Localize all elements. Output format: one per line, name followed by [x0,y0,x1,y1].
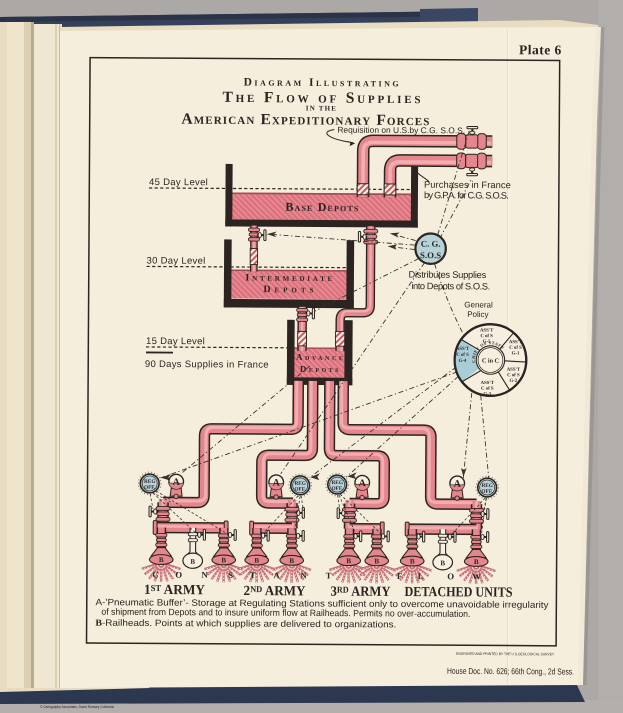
svg-text:Policy: Policy [467,310,488,319]
svg-text:L: L [418,571,424,581]
svg-text:15 Day Level: 15 Day Level [146,336,205,347]
svg-text:C of S: C of S [481,387,494,392]
svg-text:into Depots of S.O.S.: into Depots of S.O.S. [411,281,490,291]
svg-text:N: N [201,570,208,580]
svg-text:Purchases in France: Purchases in France [424,180,511,191]
svg-text:N: N [300,570,307,580]
svg-text:C of S: C of S [480,334,493,339]
svg-text:C in C: C in C [482,357,499,364]
svg-text:Plate 6: Plate 6 [519,42,562,57]
svg-text:Distributes Supplies: Distributes Supplies [408,270,486,280]
svg-text:ASS'T: ASS'T [456,347,470,352]
svg-text:B-Railheads. Points at which: B-Railheads. Points at which supplies ar… [95,618,396,630]
svg-text:ASS'T: ASS'T [509,340,523,345]
svg-text:45 Day Level: 45 Day Level [149,177,208,188]
svg-text:Base Depots: Base Depots [285,200,360,214]
svg-text:30 Day Level: 30 Day Level [147,255,206,266]
svg-text:T: T [326,571,332,581]
svg-text:House Doc. No. 626; 66th Cong: House Doc. No. 626; 66th Cong., 2d Sess. [447,666,574,677]
svg-text:Depots: Depots [300,364,340,374]
svg-text:ENGRAVED AND PRINTED BY THE U.: ENGRAVED AND PRINTED BY THE U.S.GEOLOGIC… [456,652,555,657]
svg-text:T: T [250,570,256,580]
svg-text:C of S: C of S [456,353,469,358]
svg-text:C. G.: C. G. [421,239,441,249]
svg-text:C of S: C of S [509,346,522,351]
svg-text:ASS'T: ASS'T [507,368,521,373]
svg-text:C of S: C of S [507,373,520,378]
svg-text:O: O [175,570,182,580]
svg-text:A: A [273,570,280,580]
svg-text:Advance: Advance [296,352,344,362]
svg-text:G-4: G-4 [459,359,467,364]
svg-text:G-1: G-1 [512,351,520,356]
svg-text:G-2: G-2 [509,379,517,384]
svg-text:© Cartography Associates, Davi: © Cartography Associates, David Rumsey C… [40,705,115,709]
svg-text:ASS'T: ASS'T [480,328,494,333]
svg-text:S.O.S: S.O.S [420,250,441,260]
svg-text:Diagram Illustrating: Diagram Illustrating [244,77,401,90]
svg-text:by G.P.A. for C.G. S.O.S.: by G.P.A. for C.G. S.O.S. [424,190,509,201]
svg-text:O: O [447,571,454,581]
svg-text:C: C [152,569,158,579]
svg-text:S: S [228,570,233,580]
svg-text:W: W [472,571,481,581]
svg-text:90 Days Supplies in France: 90 Days Supplies in France [145,359,269,371]
svg-text:G-3: G-3 [483,392,491,397]
svg-text:G-5: G-5 [483,340,491,345]
svg-text:Requisition on U.S.by C.G. S.O: Requisition on U.S.by C.G. S.O.S. [337,125,465,136]
svg-text:General: General [464,300,493,309]
svg-text:ASS'T: ASS'T [481,381,495,386]
svg-text:F: F [397,571,402,581]
